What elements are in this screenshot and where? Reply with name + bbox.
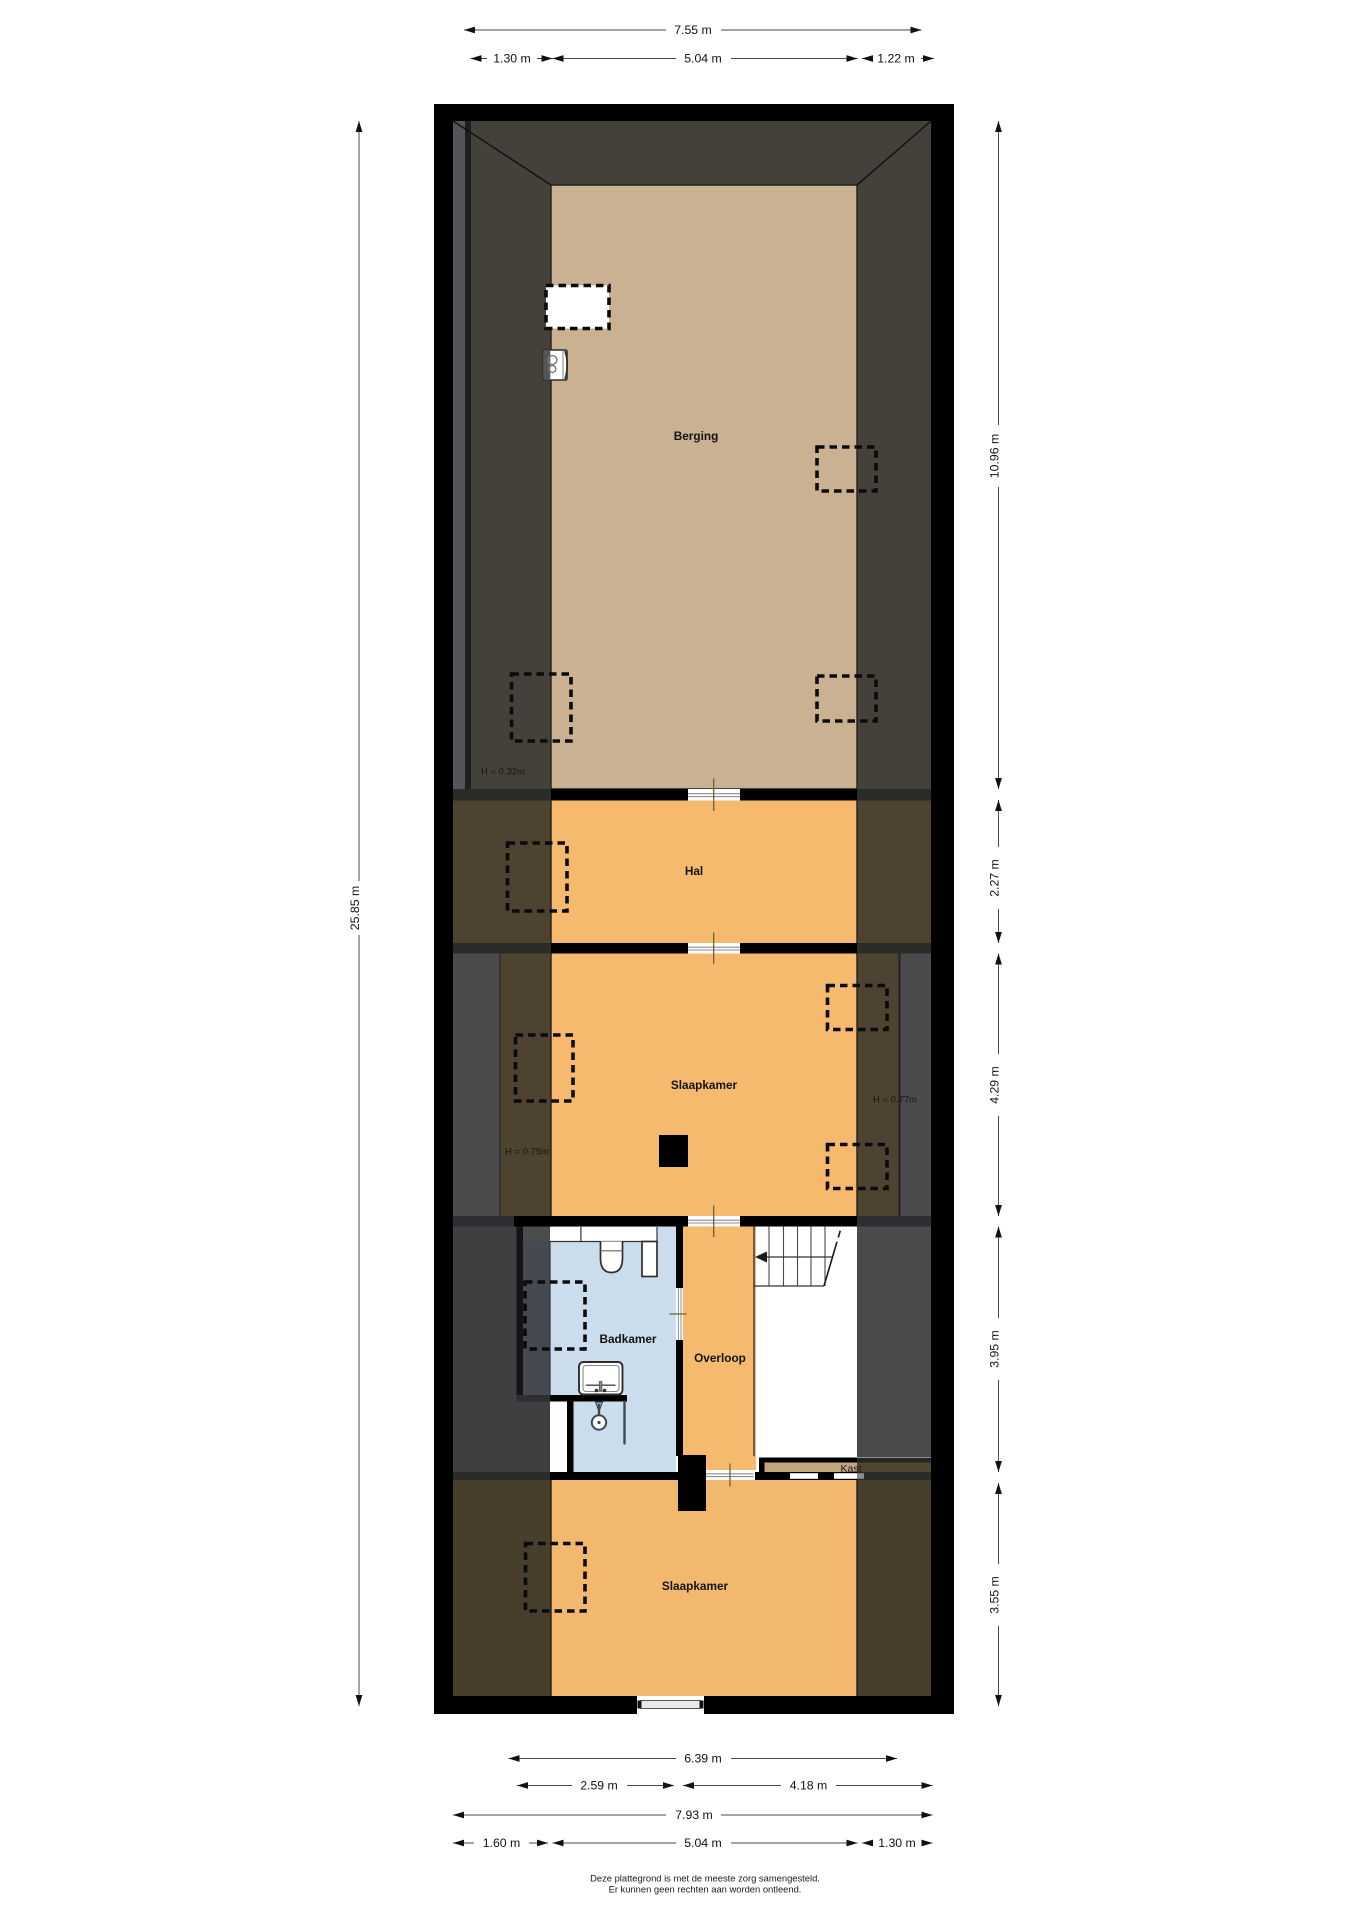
svg-text:4.29 m: 4.29 m bbox=[988, 1066, 1002, 1104]
svg-text:3.55 m: 3.55 m bbox=[988, 1576, 1002, 1614]
svg-text:10.96 m: 10.96 m bbox=[988, 434, 1002, 478]
svg-text:1.30 m: 1.30 m bbox=[493, 52, 531, 66]
svg-text:Slaapkamer: Slaapkamer bbox=[662, 1579, 729, 1593]
svg-text:4.18 m: 4.18 m bbox=[790, 1779, 828, 1793]
svg-text:Er kunnen geen rechten aan wor: Er kunnen geen rechten aan worden ontlee… bbox=[609, 1883, 802, 1894]
svg-text:2.27 m: 2.27 m bbox=[988, 859, 1002, 897]
svg-text:1.22 m: 1.22 m bbox=[877, 52, 915, 66]
svg-text:Overloop: Overloop bbox=[694, 1351, 746, 1365]
svg-text:6.39 m: 6.39 m bbox=[684, 1752, 722, 1766]
svg-text:H = 0.77m: H = 0.77m bbox=[873, 1095, 917, 1106]
svg-text:7.93 m: 7.93 m bbox=[675, 1808, 713, 1822]
svg-text:5.04 m: 5.04 m bbox=[684, 1836, 722, 1850]
svg-text:Slaapkamer: Slaapkamer bbox=[671, 1078, 738, 1092]
svg-text:1.30 m: 1.30 m bbox=[878, 1836, 916, 1850]
svg-text:5.04 m: 5.04 m bbox=[684, 52, 722, 66]
svg-text:Hal: Hal bbox=[685, 864, 703, 878]
svg-text:2.59 m: 2.59 m bbox=[580, 1779, 618, 1793]
svg-text:H = 0.75m: H = 0.75m bbox=[505, 1147, 549, 1158]
svg-text:Deze plattegrond is met de mee: Deze plattegrond is met de meeste zorg s… bbox=[590, 1873, 820, 1884]
svg-text:H = 0.32m: H = 0.32m bbox=[481, 767, 525, 778]
svg-text:7.55 m: 7.55 m bbox=[674, 23, 712, 37]
svg-text:Berging: Berging bbox=[674, 429, 719, 443]
svg-text:Kast: Kast bbox=[840, 1463, 861, 1475]
svg-text:3.95 m: 3.95 m bbox=[988, 1330, 1002, 1368]
svg-text:1.60 m: 1.60 m bbox=[483, 1836, 521, 1850]
svg-text:25.85 m: 25.85 m bbox=[348, 886, 362, 930]
svg-text:Badkamer: Badkamer bbox=[599, 1332, 656, 1346]
